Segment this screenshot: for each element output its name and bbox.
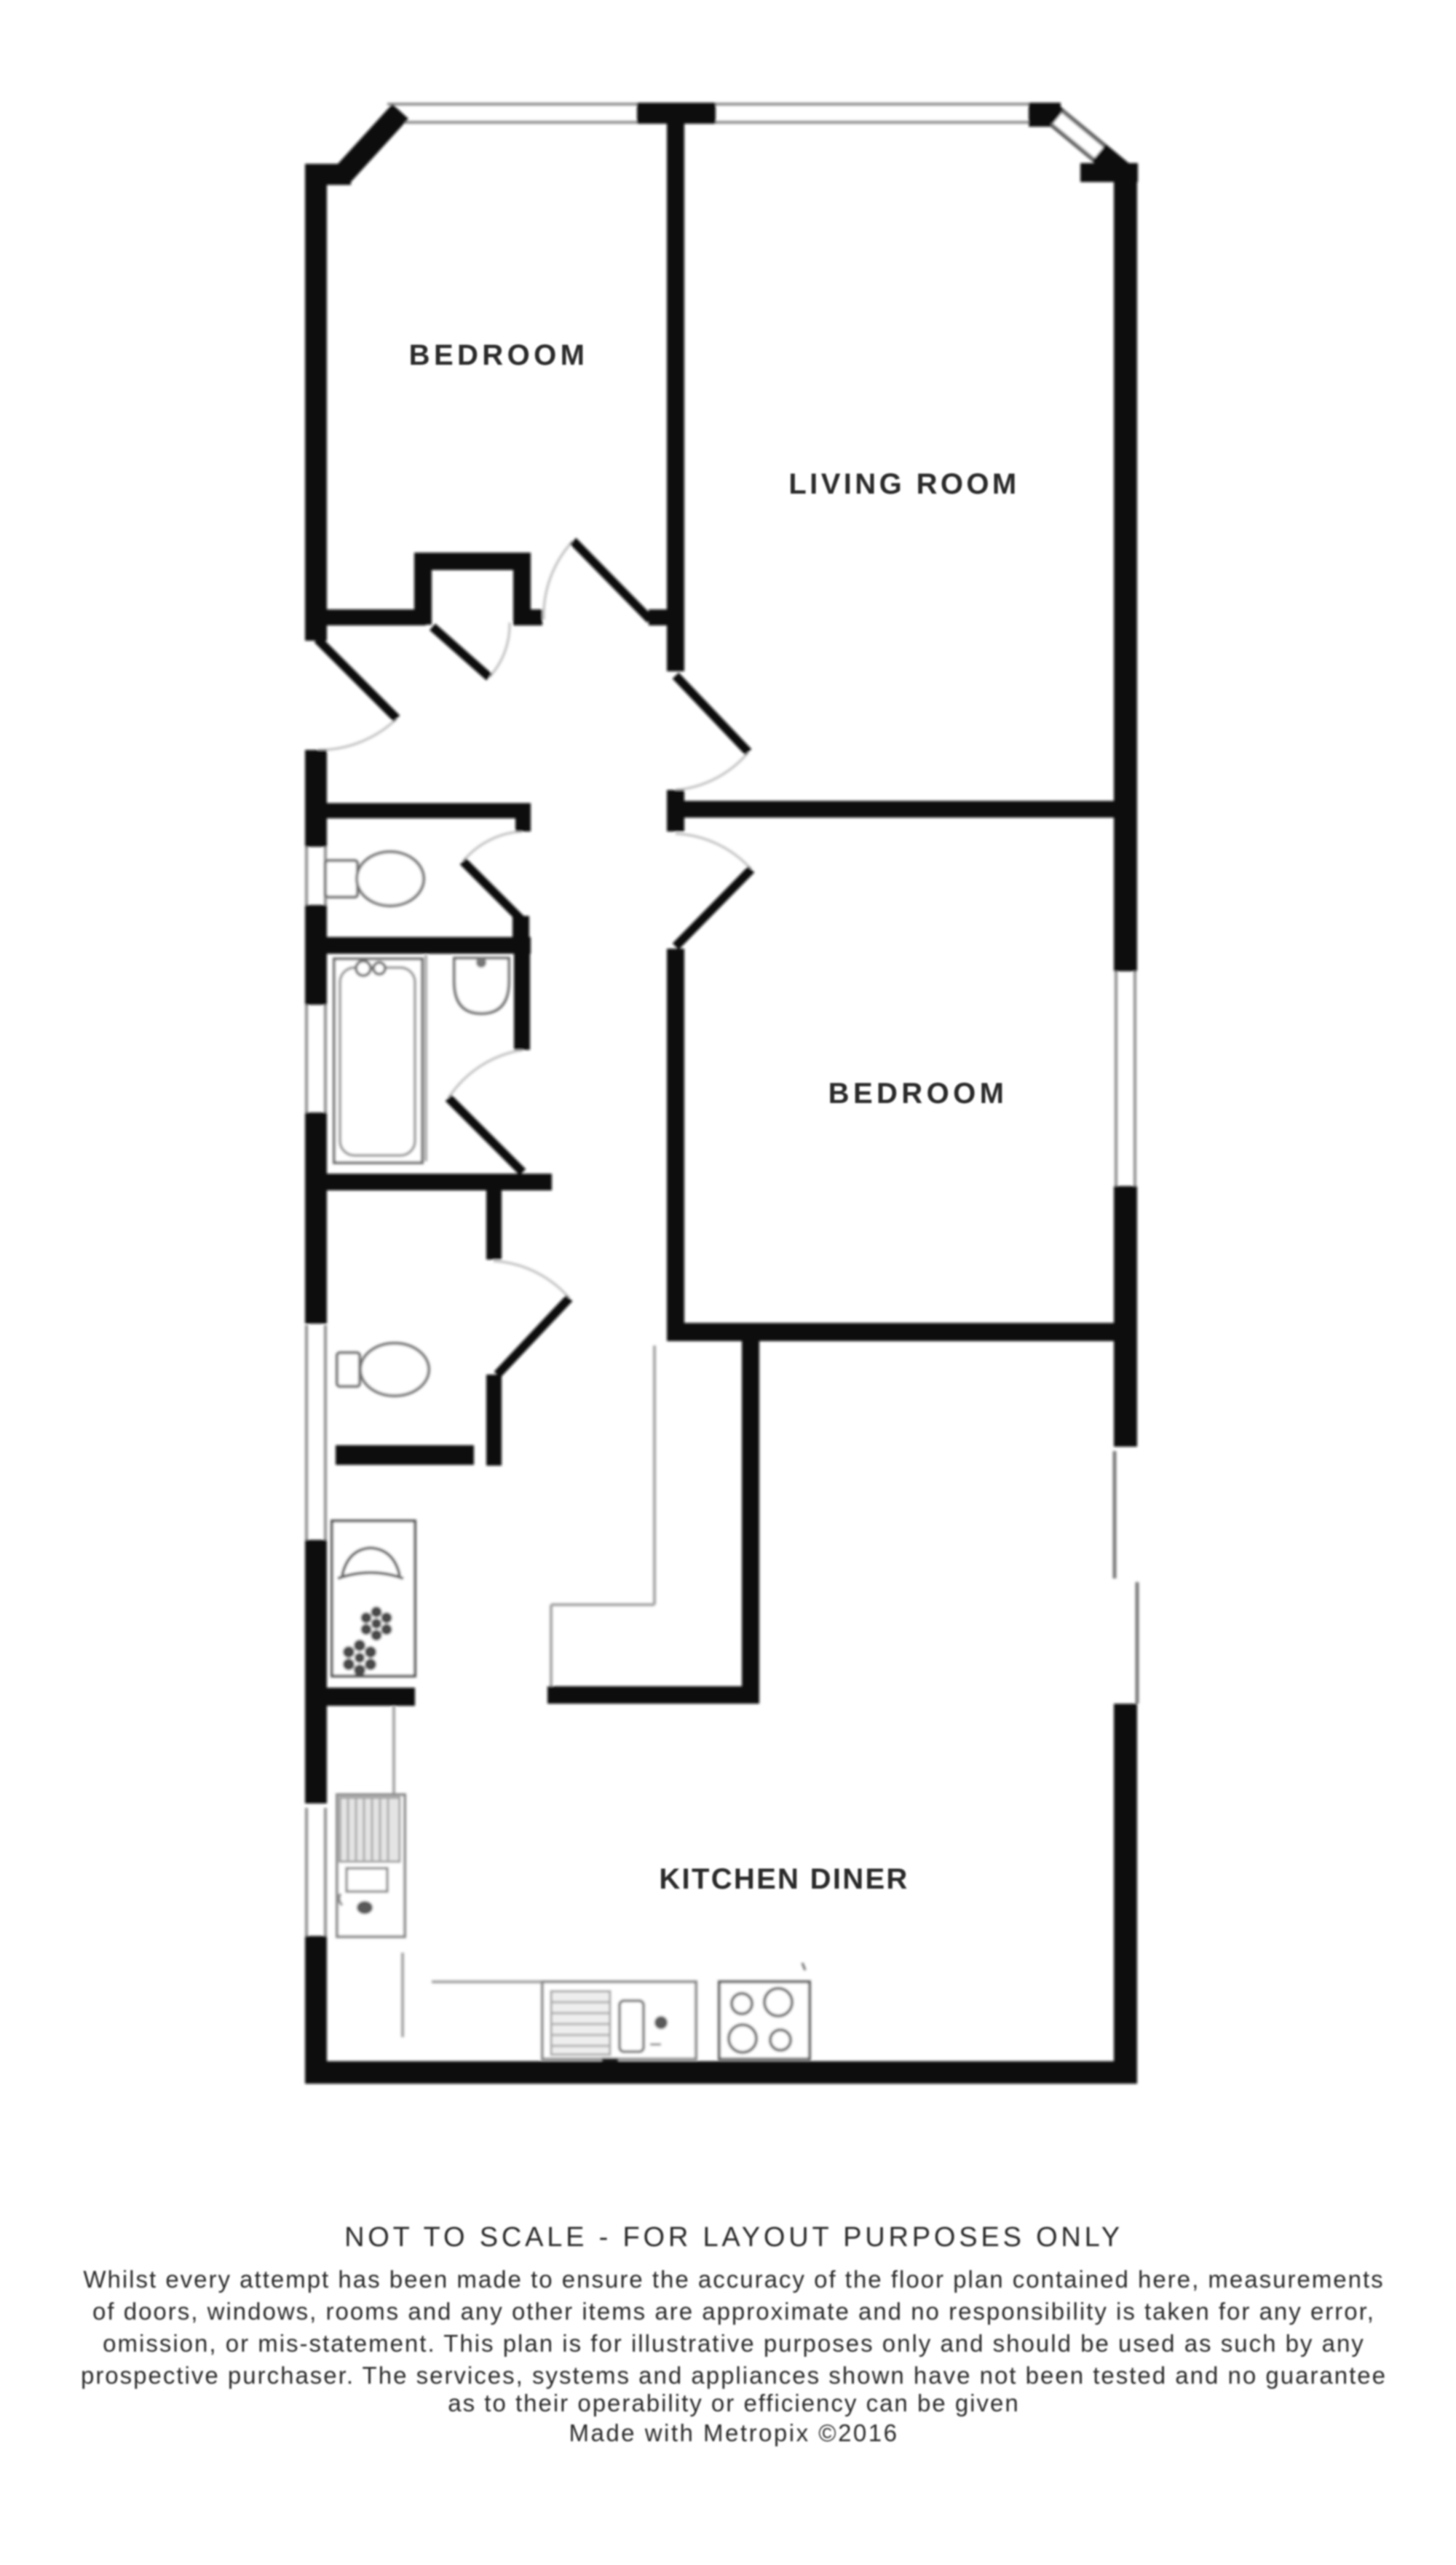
svg-text:KITCHEN DINER: KITCHEN DINER [659, 1863, 909, 1895]
svg-text:Made with Metropix ©2016: Made with Metropix ©2016 [569, 2419, 898, 2446]
svg-text:LIVING ROOM: LIVING ROOM [788, 468, 1019, 500]
svg-text:NOT TO SCALE - FOR LAYOUT PURP: NOT TO SCALE - FOR LAYOUT PURPOSES ONLY [344, 2222, 1123, 2253]
svg-text:prospective purchaser. The ser: prospective purchaser. The services, sys… [81, 2362, 1387, 2389]
svg-text:as to their operability or eff: as to their operability or efficiency ca… [448, 2390, 1019, 2416]
svg-text:Whilst every attempt has been: Whilst every attempt has been made to en… [83, 2266, 1384, 2293]
svg-text:BEDROOM: BEDROOM [409, 339, 589, 371]
svg-text:BEDROOM: BEDROOM [828, 1078, 1008, 1110]
svg-text:of doors, windows, rooms and a: of doors, windows, rooms and any other i… [92, 2298, 1375, 2325]
svg-text:omission, or mis-statement. Th: omission, or mis-statement. This plan is… [103, 2330, 1365, 2357]
